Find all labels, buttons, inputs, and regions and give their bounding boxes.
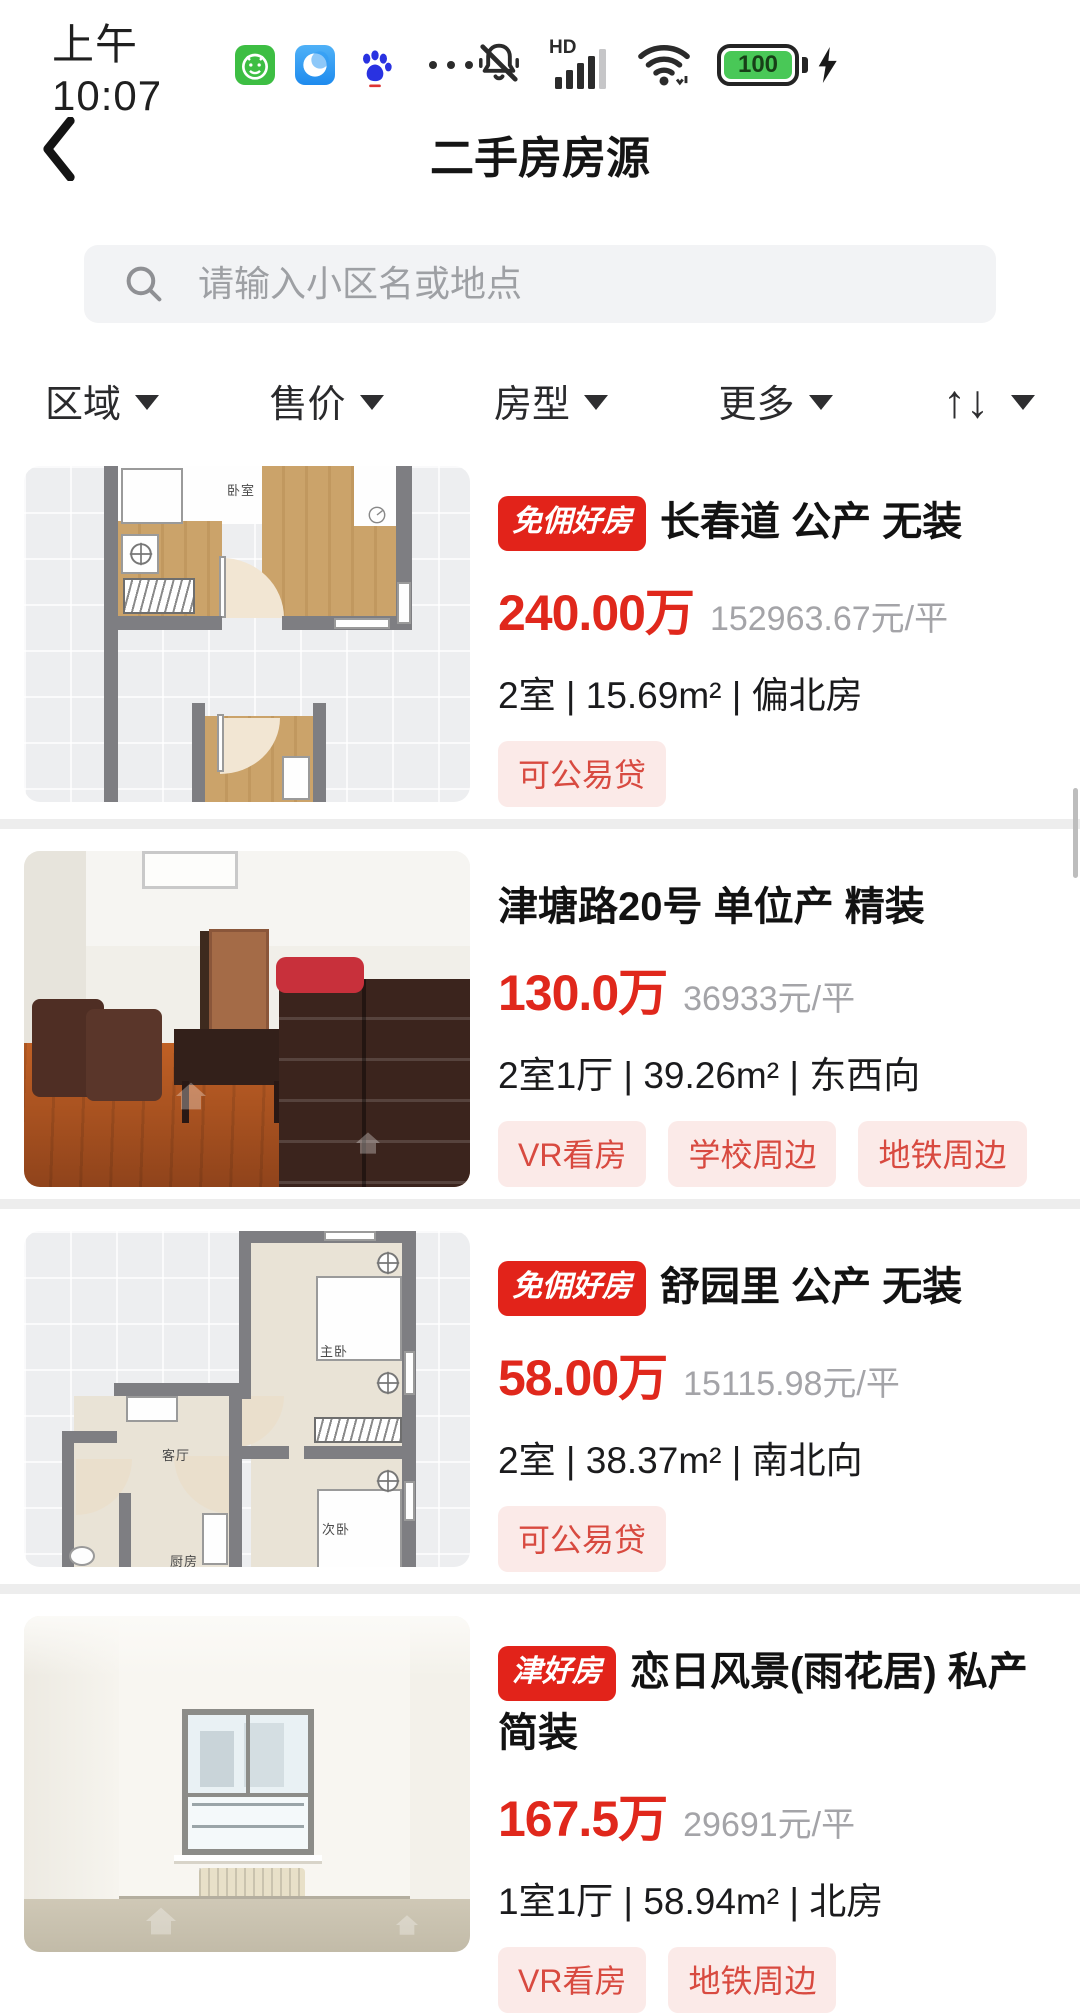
listing-title: 免佣好房舒园里 公产 无装 — [498, 1259, 1056, 1320]
feature-tag: VR看房 — [498, 1947, 646, 2013]
photo-window-building — [244, 1723, 284, 1787]
chevron-down-icon — [584, 395, 608, 410]
unit-price: 15115.98元/平 — [683, 1356, 900, 1405]
listing-photo[interactable] — [24, 851, 470, 1187]
fp-wardrobe — [123, 578, 195, 614]
baidu-app-icon — [355, 45, 395, 85]
fp-wall — [104, 466, 118, 802]
listing-title: 免佣好房长春道 公产 无装 — [498, 494, 1056, 555]
fp-compass-icon — [374, 1467, 402, 1495]
listing-list: 卧室 免佣好房长春道 公产 无装 240.00万 152963.67元/平 2室… — [0, 466, 1080, 2013]
fp-compass-icon — [374, 1369, 402, 1397]
listing-info: 津好房恋日风景(雨花居) 私产 简装 167.5万 29691元/平 1室1厅 … — [498, 1616, 1056, 2013]
price-line: 240.00万 152963.67元/平 — [498, 573, 1056, 645]
messenger-app-icon — [235, 45, 275, 85]
fp-door — [217, 714, 224, 772]
battery-level: 100 — [724, 51, 792, 79]
photo-cabinet-split — [362, 979, 366, 1187]
listing-card[interactable]: 卧室 免佣好房长春道 公产 无装 240.00万 152963.67元/平 2室… — [0, 466, 1080, 807]
listing-floorplan[interactable]: 主卧 客厅 厨房 次卧 — [24, 1231, 470, 1567]
listing-card[interactable]: 主卧 客厅 厨房 次卧 免佣好房舒园里 公产 无装 58.00万 15115.9… — [0, 1231, 1080, 1572]
chevron-down-icon — [360, 395, 384, 410]
fp-wall — [313, 703, 326, 802]
notification-icons — [235, 45, 473, 85]
tag-row: 可公易贷 — [498, 1506, 1056, 1572]
photo-window-mullion — [246, 1715, 250, 1793]
scrollbar[interactable] — [1073, 788, 1078, 878]
fp-room-label: 厨房 — [170, 1551, 198, 1567]
mute-bell-icon — [473, 37, 525, 94]
fp-wall — [114, 1383, 242, 1396]
fp-wall — [62, 1431, 74, 1567]
fp-room-label: 主卧 — [320, 1341, 348, 1360]
listing-title: 津塘路20号 单位产 精装 — [498, 879, 1056, 936]
tag-row: VR看房 地铁周边 — [498, 1947, 1056, 2013]
total-price: 130.0万 — [498, 953, 667, 1025]
photo-window — [182, 1709, 314, 1855]
photo-railing — [192, 1825, 304, 1828]
chevron-down-icon — [1011, 395, 1035, 410]
fp-room-label: 次卧 — [322, 1519, 350, 1538]
fp-compass-icon — [127, 540, 155, 568]
chevron-down-icon — [809, 395, 833, 410]
listing-info: 免佣好房长春道 公产 无装 240.00万 152963.67元/平 2室 | … — [498, 466, 1056, 807]
more-notifications-icon — [429, 61, 473, 69]
system-icons: HD 100 — [473, 37, 840, 94]
chevron-down-icon — [135, 395, 159, 410]
fp-door — [219, 556, 226, 618]
filter-layout[interactable]: 房型 — [494, 373, 608, 428]
photo-railing — [192, 1803, 304, 1806]
fp-wall — [239, 1231, 251, 1399]
listing-floorplan[interactable]: 卧室 — [24, 466, 470, 802]
listing-title-text: 舒园里 公产 无装 — [660, 1265, 962, 1309]
photo-cabinet-drawers — [279, 979, 470, 1187]
listing-title: 津好房恋日风景(雨花居) 私产 简装 — [498, 1644, 1056, 1761]
photo-table — [174, 1029, 290, 1085]
divider — [0, 819, 1080, 829]
fp-wardrobe — [314, 1417, 402, 1443]
fp-window — [334, 618, 390, 629]
wifi-icon — [635, 37, 693, 94]
fp-wall — [62, 1431, 117, 1443]
search-input[interactable] — [198, 263, 966, 305]
promo-badge: 免佣好房 — [498, 1261, 646, 1316]
fp-window — [397, 582, 411, 624]
photo-ceiling-lamp — [142, 851, 238, 889]
total-price: 167.5万 — [498, 1779, 667, 1851]
sort-up-icon: ↑ — [943, 378, 966, 424]
photo-window-sill — [174, 1855, 322, 1864]
listing-specs: 2室 | 38.37m² | 南北向 — [498, 1430, 1056, 1484]
listing-photo[interactable] — [24, 1616, 470, 1952]
watermark — [144, 1906, 178, 1936]
listing-card[interactable]: 津好房恋日风景(雨花居) 私产 简装 167.5万 29691元/平 1室1厅 … — [0, 1616, 1080, 2013]
tag-row: 可公易贷 — [498, 741, 1056, 807]
filter-price[interactable]: 售价 — [270, 373, 384, 428]
fp-compass-icon — [374, 1249, 402, 1277]
listing-info: 免佣好房舒园里 公产 无装 58.00万 15115.98元/平 2室 | 38… — [498, 1231, 1056, 1572]
price-line: 58.00万 15115.98元/平 — [498, 1338, 1056, 1410]
status-bar: 上午10:07 HD 100 — [0, 0, 1080, 100]
watermark — [354, 1131, 382, 1155]
fp-wall — [229, 1383, 242, 1567]
page-title: 二手房房源 — [0, 100, 1080, 186]
fp-window — [324, 1231, 376, 1241]
fp-counter — [126, 1396, 178, 1422]
unit-price: 36933元/平 — [683, 971, 855, 1020]
feature-tag: 地铁周边 — [858, 1121, 1026, 1187]
fp-bed — [121, 468, 183, 524]
filter-more[interactable]: 更多 — [719, 373, 833, 428]
search-bar[interactable] — [84, 245, 996, 323]
total-price: 58.00万 — [498, 1338, 667, 1410]
fp-room-label: 客厅 — [162, 1445, 190, 1464]
photo-window-building — [200, 1731, 234, 1787]
fp-wall — [192, 703, 205, 802]
photo-red-suitcase — [276, 957, 364, 993]
fp-fan-icon — [366, 504, 388, 526]
filter-district[interactable]: 区域 — [45, 373, 159, 428]
price-line: 130.0万 36933元/平 — [498, 953, 1056, 1025]
fp-wall — [239, 1446, 289, 1459]
divider — [0, 1584, 1080, 1594]
sort-control[interactable]: ↑ ↓ — [943, 378, 1035, 424]
listing-specs: 2室1厅 | 39.26m² | 东西向 — [498, 1045, 1056, 1099]
fp-wall — [304, 1446, 404, 1459]
photo-ceiling — [24, 1616, 470, 1676]
listing-specs: 1室1厅 | 58.94m² | 北房 — [498, 1871, 1056, 1925]
fp-appliance — [202, 1513, 228, 1565]
fp-window — [404, 1351, 415, 1395]
listing-title-text: 津塘路20号 单位产 精装 — [498, 885, 925, 929]
fp-fixture — [282, 756, 310, 800]
back-button[interactable] — [38, 114, 88, 184]
listing-card[interactable]: 津塘路20号 单位产 精装 130.0万 36933元/平 2室1厅 | 39.… — [0, 851, 1080, 1188]
cellular-signal-icon: HD — [549, 37, 611, 93]
divider — [0, 1199, 1080, 1209]
watermark — [174, 1081, 208, 1111]
feature-tag: VR看房 — [498, 1121, 646, 1187]
promo-badge: 免佣好房 — [498, 496, 646, 551]
feature-tag: 可公易贷 — [498, 741, 666, 807]
unit-price: 29691元/平 — [683, 1797, 855, 1846]
tag-row: VR看房 学校周边 地铁周边 — [498, 1121, 1056, 1187]
filter-bar: 区域 售价 房型 更多 ↑ ↓ — [45, 373, 1035, 428]
title-bar: 二手房房源 — [0, 100, 1080, 195]
photo-chair — [86, 1009, 162, 1101]
battery-icon: 100 — [717, 44, 840, 86]
listing-info: 津塘路20号 单位产 精装 130.0万 36933元/平 2室1厅 | 39.… — [498, 851, 1056, 1188]
fp-wall — [118, 616, 222, 630]
listing-title-text: 长春道 公产 无装 — [660, 500, 962, 544]
listing-specs: 2室 | 15.69m² | 偏北房 — [498, 665, 1056, 719]
feature-tag: 学校周边 — [668, 1121, 836, 1187]
fp-window — [404, 1481, 415, 1521]
fp-room-label: 卧室 — [227, 480, 255, 499]
promo-badge: 津好房 — [498, 1646, 616, 1701]
feature-tag: 可公易贷 — [498, 1506, 666, 1572]
total-price: 240.00万 — [498, 573, 694, 645]
browser-app-icon — [295, 45, 335, 85]
watermark — [394, 1914, 420, 1936]
fp-wall — [119, 1493, 131, 1567]
price-line: 167.5万 29691元/平 — [498, 1779, 1056, 1851]
unit-price: 152963.67元/平 — [710, 591, 948, 640]
feature-tag: 地铁周边 — [668, 1947, 836, 2013]
sort-down-icon: ↓ — [966, 378, 989, 424]
search-icon — [124, 264, 164, 304]
charging-bolt-icon — [814, 47, 840, 83]
